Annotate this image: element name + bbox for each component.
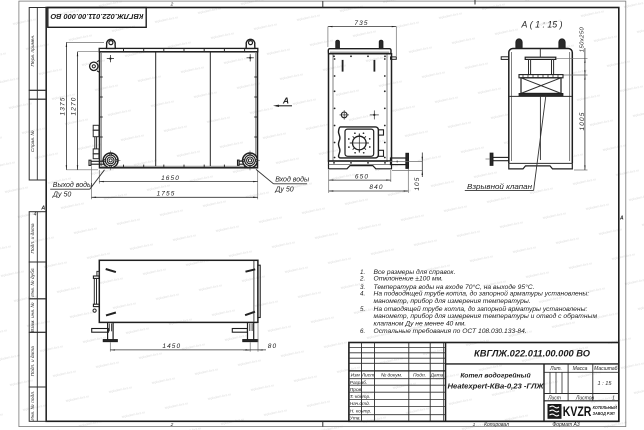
- svg-text:КВГЛЖ.022.011.00.000 ВО: КВГЛЖ.022.011.00.000 ВО: [474, 349, 591, 360]
- svg-text:650: 650: [355, 173, 369, 180]
- svg-text:Подп. и дата: Подп. и дата: [30, 346, 36, 376]
- svg-text:1270: 1270: [71, 97, 78, 116]
- svg-text:Дата: Дата: [429, 373, 443, 379]
- svg-text:А: А: [40, 205, 45, 211]
- svg-text:Н. контр.: Н. контр.: [350, 409, 372, 415]
- svg-text:КОТЕЛЬНЫЙ: КОТЕЛЬНЫЙ: [593, 405, 618, 410]
- svg-text:А ( 1 : 15 ): А ( 1 : 15 ): [521, 19, 563, 29]
- svg-text:1650: 1650: [161, 175, 180, 182]
- svg-text:Масштаб: Масштаб: [594, 366, 618, 372]
- svg-text:105: 105: [414, 177, 421, 191]
- svg-text:Взрывной клапан: Взрывной клапан: [467, 182, 532, 191]
- svg-text:2: 2: [170, 422, 174, 428]
- svg-text:Копировал: Копировал: [484, 422, 509, 428]
- svg-text:Масса: Масса: [573, 366, 588, 372]
- svg-text:ЗАВОД РЭП: ЗАВОД РЭП: [593, 411, 616, 416]
- svg-text:Лист: Лист: [361, 373, 375, 379]
- svg-text:5.: 5.: [360, 306, 365, 313]
- svg-text:Т. контр.: Т. контр.: [350, 394, 371, 400]
- svg-text:Вход воды: Вход воды: [275, 175, 310, 183]
- svg-text:Нач.отд.: Нач.отд.: [350, 401, 370, 407]
- svg-text:KVZR: KVZR: [563, 404, 592, 419]
- svg-text:Лист: Лист: [547, 395, 561, 401]
- svg-text:1: 1: [612, 395, 615, 401]
- svg-text:Котел водогрейный: Котел водогрейный: [460, 372, 531, 380]
- svg-text:Ду 50: Ду 50: [52, 191, 71, 198]
- svg-text:На отводящей трубе котла, до з: На отводящей трубе котла, до запорной ар…: [374, 305, 588, 313]
- svg-text:Взам. инв. №: Взам. инв. №: [30, 302, 36, 332]
- svg-text:1 : 15: 1 : 15: [598, 381, 613, 387]
- svg-text:6.: 6.: [360, 328, 365, 335]
- svg-text:4: 4: [34, 211, 37, 217]
- svg-text:4.: 4.: [360, 291, 365, 298]
- svg-text:Разраб.: Разраб.: [350, 380, 367, 386]
- svg-text:Справ. №: Справ. №: [30, 130, 36, 152]
- svg-text:Выход воды: Выход воды: [53, 181, 93, 189]
- svg-text:А: А: [619, 216, 624, 222]
- svg-text:На подводящей трубе котла, до: На подводящей трубе котла, до запорной а…: [374, 290, 590, 298]
- svg-text:80: 80: [268, 343, 277, 350]
- svg-text:735: 735: [354, 20, 368, 27]
- svg-text:Изм: Изм: [351, 373, 361, 379]
- svg-text:Лит.: Лит.: [549, 366, 562, 372]
- svg-text:Листов: Листов: [575, 395, 595, 401]
- svg-text:манометр, прибор для измерения: манометр, прибор для измерения температу…: [374, 297, 531, 305]
- svg-text:клапаном Ду не менее 40 мм.: клапаном Ду не менее 40 мм.: [374, 321, 467, 328]
- svg-text:№ докум.: № докум.: [381, 373, 403, 379]
- svg-text:Ду 50: Ду 50: [274, 186, 293, 193]
- svg-text:манометр, прибор для измерения: манометр, прибор для измерения температу…: [374, 312, 598, 320]
- svg-text:2.: 2.: [359, 275, 365, 282]
- svg-text:Подп.: Подп.: [413, 373, 426, 379]
- svg-text:1450: 1450: [162, 343, 181, 350]
- svg-text:Подп. и дата: Подп. и дата: [30, 223, 36, 253]
- svg-text:2: 2: [170, 1, 174, 7]
- svg-text:Пров.: Пров.: [350, 387, 363, 393]
- svg-text:Формат А3: Формат А3: [552, 422, 580, 428]
- svg-text:КВГЛЖ.022.011.00.000 ВО: КВГЛЖ.022.011.00.000 ВО: [50, 12, 143, 21]
- svg-text:1375: 1375: [60, 97, 67, 116]
- svg-text:Инв. № дубл.: Инв. № дубл.: [30, 267, 36, 297]
- svg-text:А: А: [282, 96, 289, 106]
- svg-text:Перв. примен.: Перв. примен.: [30, 35, 36, 67]
- svg-text:840: 840: [369, 184, 383, 191]
- svg-text:1755: 1755: [157, 191, 176, 198]
- svg-text:Инв. № подл.: Инв. № подл.: [30, 391, 36, 421]
- svg-text:1005: 1005: [579, 112, 586, 131]
- svg-text:Отклонение ±100 мм.: Отклонение ±100 мм.: [374, 275, 444, 282]
- svg-text:150х250: 150х250: [579, 26, 585, 52]
- svg-text:1: 1: [473, 422, 476, 428]
- svg-text:Утв.: Утв.: [350, 416, 361, 422]
- svg-text:Heatexpert-КВа-0,23 -ГЛЖ: Heatexpert-КВа-0,23 -ГЛЖ: [448, 383, 545, 390]
- svg-text:Остальные требования по ОСТ 10: Остальные требования по ОСТ 108.030.133-…: [374, 327, 527, 335]
